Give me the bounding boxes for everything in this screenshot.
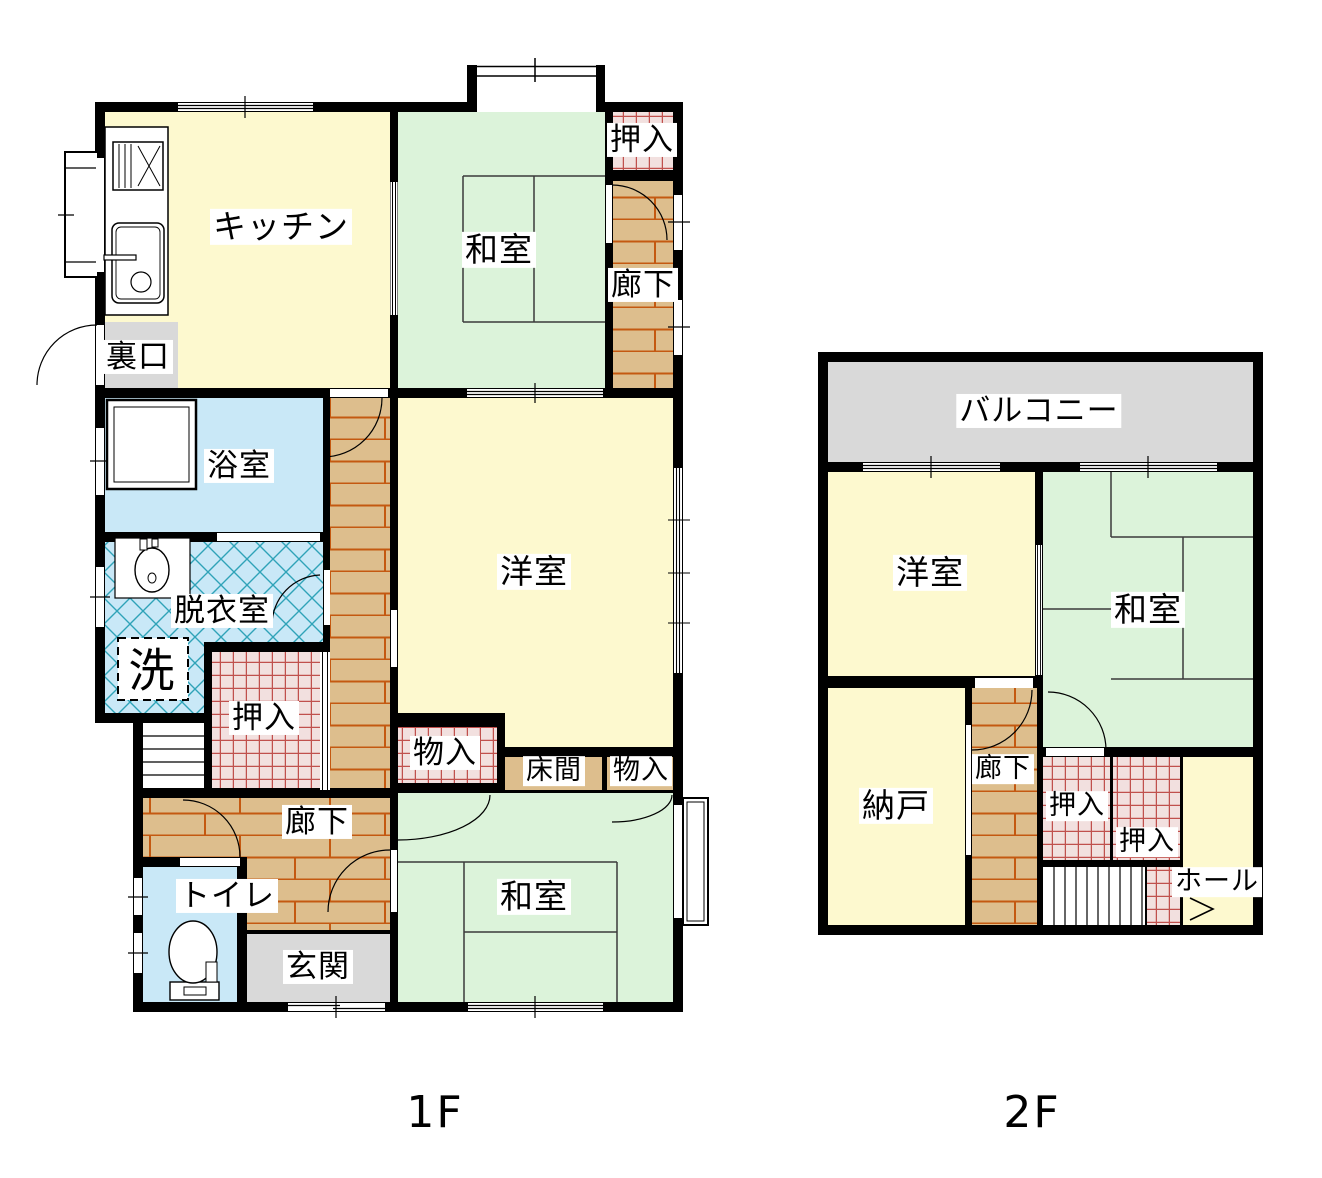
stove-icon (113, 142, 163, 190)
label-youshitsu-2f: 洋室 (893, 555, 967, 591)
label-oshiire-mid: 押入 (229, 701, 299, 735)
room-rouka-south (143, 798, 390, 857)
label-youshitsu-1f: 洋室 (497, 554, 571, 590)
label-nando: 納戸 (859, 788, 933, 824)
label-datsuishitsu: 脱衣室 (171, 594, 273, 628)
label-hall-2f: ホール (1172, 867, 1262, 897)
label-uraguchi: 裏口 (103, 340, 173, 374)
caption-2f: 2F (1000, 1089, 1063, 1137)
toilet-icon (169, 921, 219, 1000)
label-washitsu-2f: 和室 (1111, 592, 1185, 628)
label-oshiire-ne: 押入 (607, 123, 677, 157)
label-washitsu-south: 和室 (497, 879, 571, 915)
bathtub-icon (107, 400, 196, 489)
label-sen: 洗 (129, 646, 176, 697)
label-genkan: 玄関 (283, 950, 353, 984)
label-balcony: バルコニー (956, 394, 1121, 428)
label-rouka-east: 廊下 (608, 268, 678, 302)
caption-1f: 1F (403, 1089, 466, 1137)
label-oshiire-2f-b: 押入 (1116, 827, 1178, 857)
label-oshiire-2f-a: 押入 (1046, 791, 1108, 821)
floorplan-page: キッチン 和室 押入 廊下 裏口 浴室 脱衣室 洗 押入 物入 床間 物入 廊下… (0, 0, 1322, 1178)
stairs-2f (1043, 867, 1145, 925)
label-tokonoma: 床間 (523, 756, 585, 786)
room-rouka-2f (972, 688, 1037, 925)
label-kitchen: キッチン (210, 209, 352, 245)
label-toilet: トイレ (176, 879, 278, 913)
label-monoire-east: 物入 (610, 756, 672, 786)
stairs-1f (143, 723, 204, 788)
label-washitsu-north: 和室 (462, 232, 536, 268)
label-monoire-west: 物入 (410, 736, 480, 770)
room-rouka-west (330, 398, 390, 798)
label-yokushitsu: 浴室 (204, 449, 274, 483)
label-rouka-2f: 廊下 (972, 754, 1034, 784)
label-rouka-south: 廊下 (282, 805, 352, 839)
